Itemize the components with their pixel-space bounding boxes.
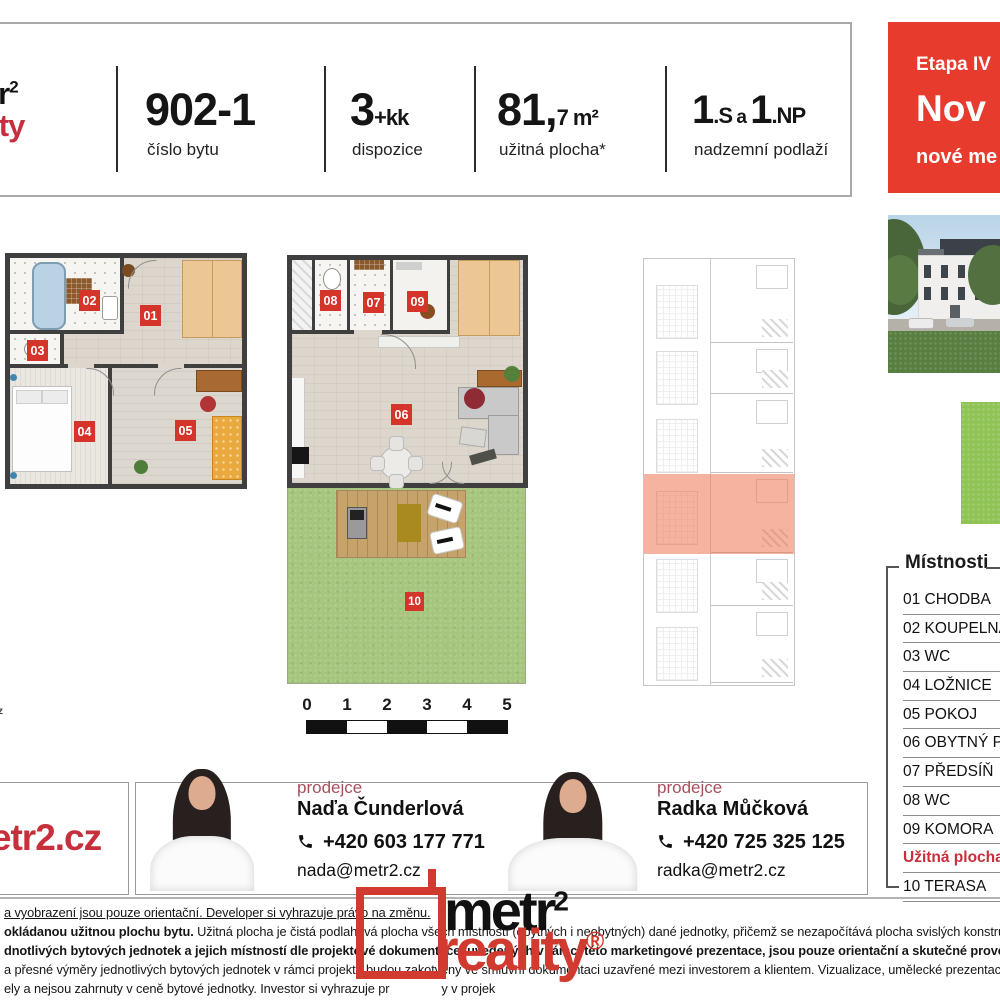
rooms-list-rule	[986, 567, 1000, 569]
door-arc	[350, 334, 416, 400]
cut-text-fragment: z	[0, 706, 3, 717]
rooms-list-item: 07 PŘEDSÍŇ	[903, 758, 1000, 787]
scale-tick: 5	[502, 695, 511, 715]
disposition-label: dispozice	[352, 140, 423, 160]
footer-logo-tab	[428, 869, 436, 895]
area-value: 81,7 m²	[497, 84, 598, 136]
rooms-list-item: 01 CHODBA	[903, 586, 1000, 615]
hedge	[888, 331, 1000, 373]
site-plan	[643, 258, 795, 686]
footer-logo-red: reality®	[436, 917, 601, 984]
room-badge-01: 01	[140, 305, 161, 326]
floorplan-lower: 01 02 03 04 05	[5, 253, 247, 489]
plant	[134, 460, 148, 474]
rooms-list-bracket	[886, 566, 888, 888]
wardrobe	[458, 260, 520, 336]
coffee-table	[459, 426, 487, 447]
agent-email[interactable]: nada@metr2.cz	[297, 860, 421, 881]
header-box: metr2 reality 902-1 číslo bytu 3+kk disp…	[0, 22, 852, 197]
room-badge-08: 08	[320, 290, 341, 311]
unit-highlight	[644, 474, 794, 554]
dining-chair	[370, 456, 385, 471]
unit-number-label: číslo bytu	[147, 140, 219, 160]
footer-logo-square	[356, 887, 446, 979]
double-bed	[12, 386, 72, 472]
site-plan-unit	[711, 343, 793, 394]
logo-text-black: metr2	[0, 76, 18, 112]
stove	[292, 447, 309, 464]
agent-phone[interactable]: +420 603 177 771	[297, 831, 485, 854]
dining-chair	[408, 456, 423, 471]
terrace-deck	[336, 490, 466, 558]
rooms-list-item: 04 LOŽNICE	[903, 672, 1000, 701]
scale-tick: 1	[342, 695, 351, 715]
room-badge-07: 07	[363, 292, 384, 313]
wardrobe	[182, 260, 242, 338]
floorplan-upper: 08 07 09 06	[287, 255, 528, 488]
website-box: metr2.cz	[0, 782, 129, 895]
scale-bar-segments	[306, 720, 508, 734]
plant	[504, 366, 520, 382]
room-badge-03: 03	[27, 340, 48, 361]
building-photo	[888, 215, 1000, 373]
header-divider	[116, 66, 118, 172]
nightstand	[10, 472, 17, 479]
rooms-list-item: 03 WC	[903, 643, 1000, 672]
rooms-list-item: 08 WC	[903, 787, 1000, 816]
rooms-list-item: Užitná plocha*	[903, 844, 1000, 873]
dining-chair	[389, 436, 404, 451]
agent-phone[interactable]: +420 725 325 125	[657, 831, 845, 854]
promo-subtitle: nové me	[916, 146, 997, 169]
rooms-list-title: Místnosti	[905, 552, 988, 574]
rooms-list-item: 02 KOUPELNA	[903, 615, 1000, 644]
agent-photo-nada	[148, 767, 256, 891]
lounge-chair	[429, 526, 465, 555]
terrace: 10	[287, 488, 526, 684]
nightstand	[10, 374, 17, 381]
header-divider	[324, 66, 326, 172]
washbasin	[102, 296, 118, 320]
terrace-table	[397, 504, 421, 542]
scale-bar: 012345	[300, 695, 520, 739]
rug	[396, 262, 422, 270]
rooms-list: 01 CHODBA02 KOUPELNA03 WC04 LOŽNICE05 PO…	[903, 586, 1000, 902]
rooms-list-item: 05 POKOJ	[903, 701, 1000, 730]
agent-role: prodejce	[657, 778, 722, 798]
bathtub	[32, 262, 66, 330]
tv-unit	[469, 449, 497, 466]
agent-role: prodejce	[297, 778, 362, 798]
desk	[196, 370, 242, 392]
site-plan-terrace	[656, 559, 698, 613]
promo-banner: Etapa IV Nov nové me	[888, 22, 1000, 193]
room-badge-09: 09	[407, 291, 428, 312]
floor-value: 1.S a 1.NP	[692, 88, 805, 133]
site-plan-terrace	[656, 285, 698, 339]
room-badge-05: 05	[175, 420, 196, 441]
unit-number: 902-1	[145, 84, 255, 136]
scale-tick: 4	[462, 695, 471, 715]
room-badge-06: 06	[391, 404, 412, 425]
header-divider	[665, 66, 667, 172]
header-divider	[474, 66, 476, 172]
grill	[347, 507, 367, 539]
site-plan-unit	[711, 606, 793, 683]
lounge-chair	[426, 493, 464, 525]
promo-etapa: Etapa IV	[916, 54, 991, 76]
phone-icon	[297, 833, 314, 850]
doormat	[354, 260, 384, 270]
logo-text-red: reality	[0, 108, 24, 144]
scale-tick: 2	[382, 695, 391, 715]
site-plan-terrace	[656, 351, 698, 405]
site-plan-unit	[711, 259, 793, 343]
rooms-list-item: 06 OBYTNÝ PO	[903, 729, 1000, 758]
promo-project-name: Nov	[916, 88, 986, 130]
agent-photo-radka	[505, 770, 640, 891]
site-plan-unit	[711, 394, 793, 473]
phone-icon	[657, 833, 674, 850]
agent-email[interactable]: radka@metr2.cz	[657, 860, 786, 881]
car	[908, 318, 934, 329]
area-label: užitná plocha*	[499, 140, 606, 160]
website-link[interactable]: metr2.cz	[0, 817, 101, 859]
room-badge-10: 10	[405, 592, 424, 611]
toilet	[323, 268, 341, 290]
site-plan-unit	[711, 553, 793, 606]
dining-chair	[389, 474, 404, 489]
chair	[200, 396, 216, 412]
room-badge-02: 02	[79, 290, 100, 311]
single-bed	[212, 416, 242, 480]
rooms-list-item: 09 KOMORA	[903, 816, 1000, 845]
site-plan-terrace	[656, 627, 698, 681]
car	[946, 318, 974, 327]
agent-name: Radka Můčková	[657, 798, 808, 821]
site-plan-terrace	[656, 419, 698, 473]
armchair	[464, 388, 485, 409]
flyer-canvas: metr2 reality 902-1 číslo bytu 3+kk disp…	[0, 0, 1000, 1000]
floor-label: nadzemní podlaží	[694, 140, 828, 160]
scale-tick: 0	[302, 695, 311, 715]
room-badge-04: 04	[74, 421, 95, 442]
storage-hatch	[292, 260, 312, 330]
scale-tick: 3	[422, 695, 431, 715]
agent-name: Naďa Čunderlová	[297, 798, 464, 821]
map-green-area	[961, 402, 1000, 524]
disposition-value: 3+kk	[350, 84, 408, 136]
